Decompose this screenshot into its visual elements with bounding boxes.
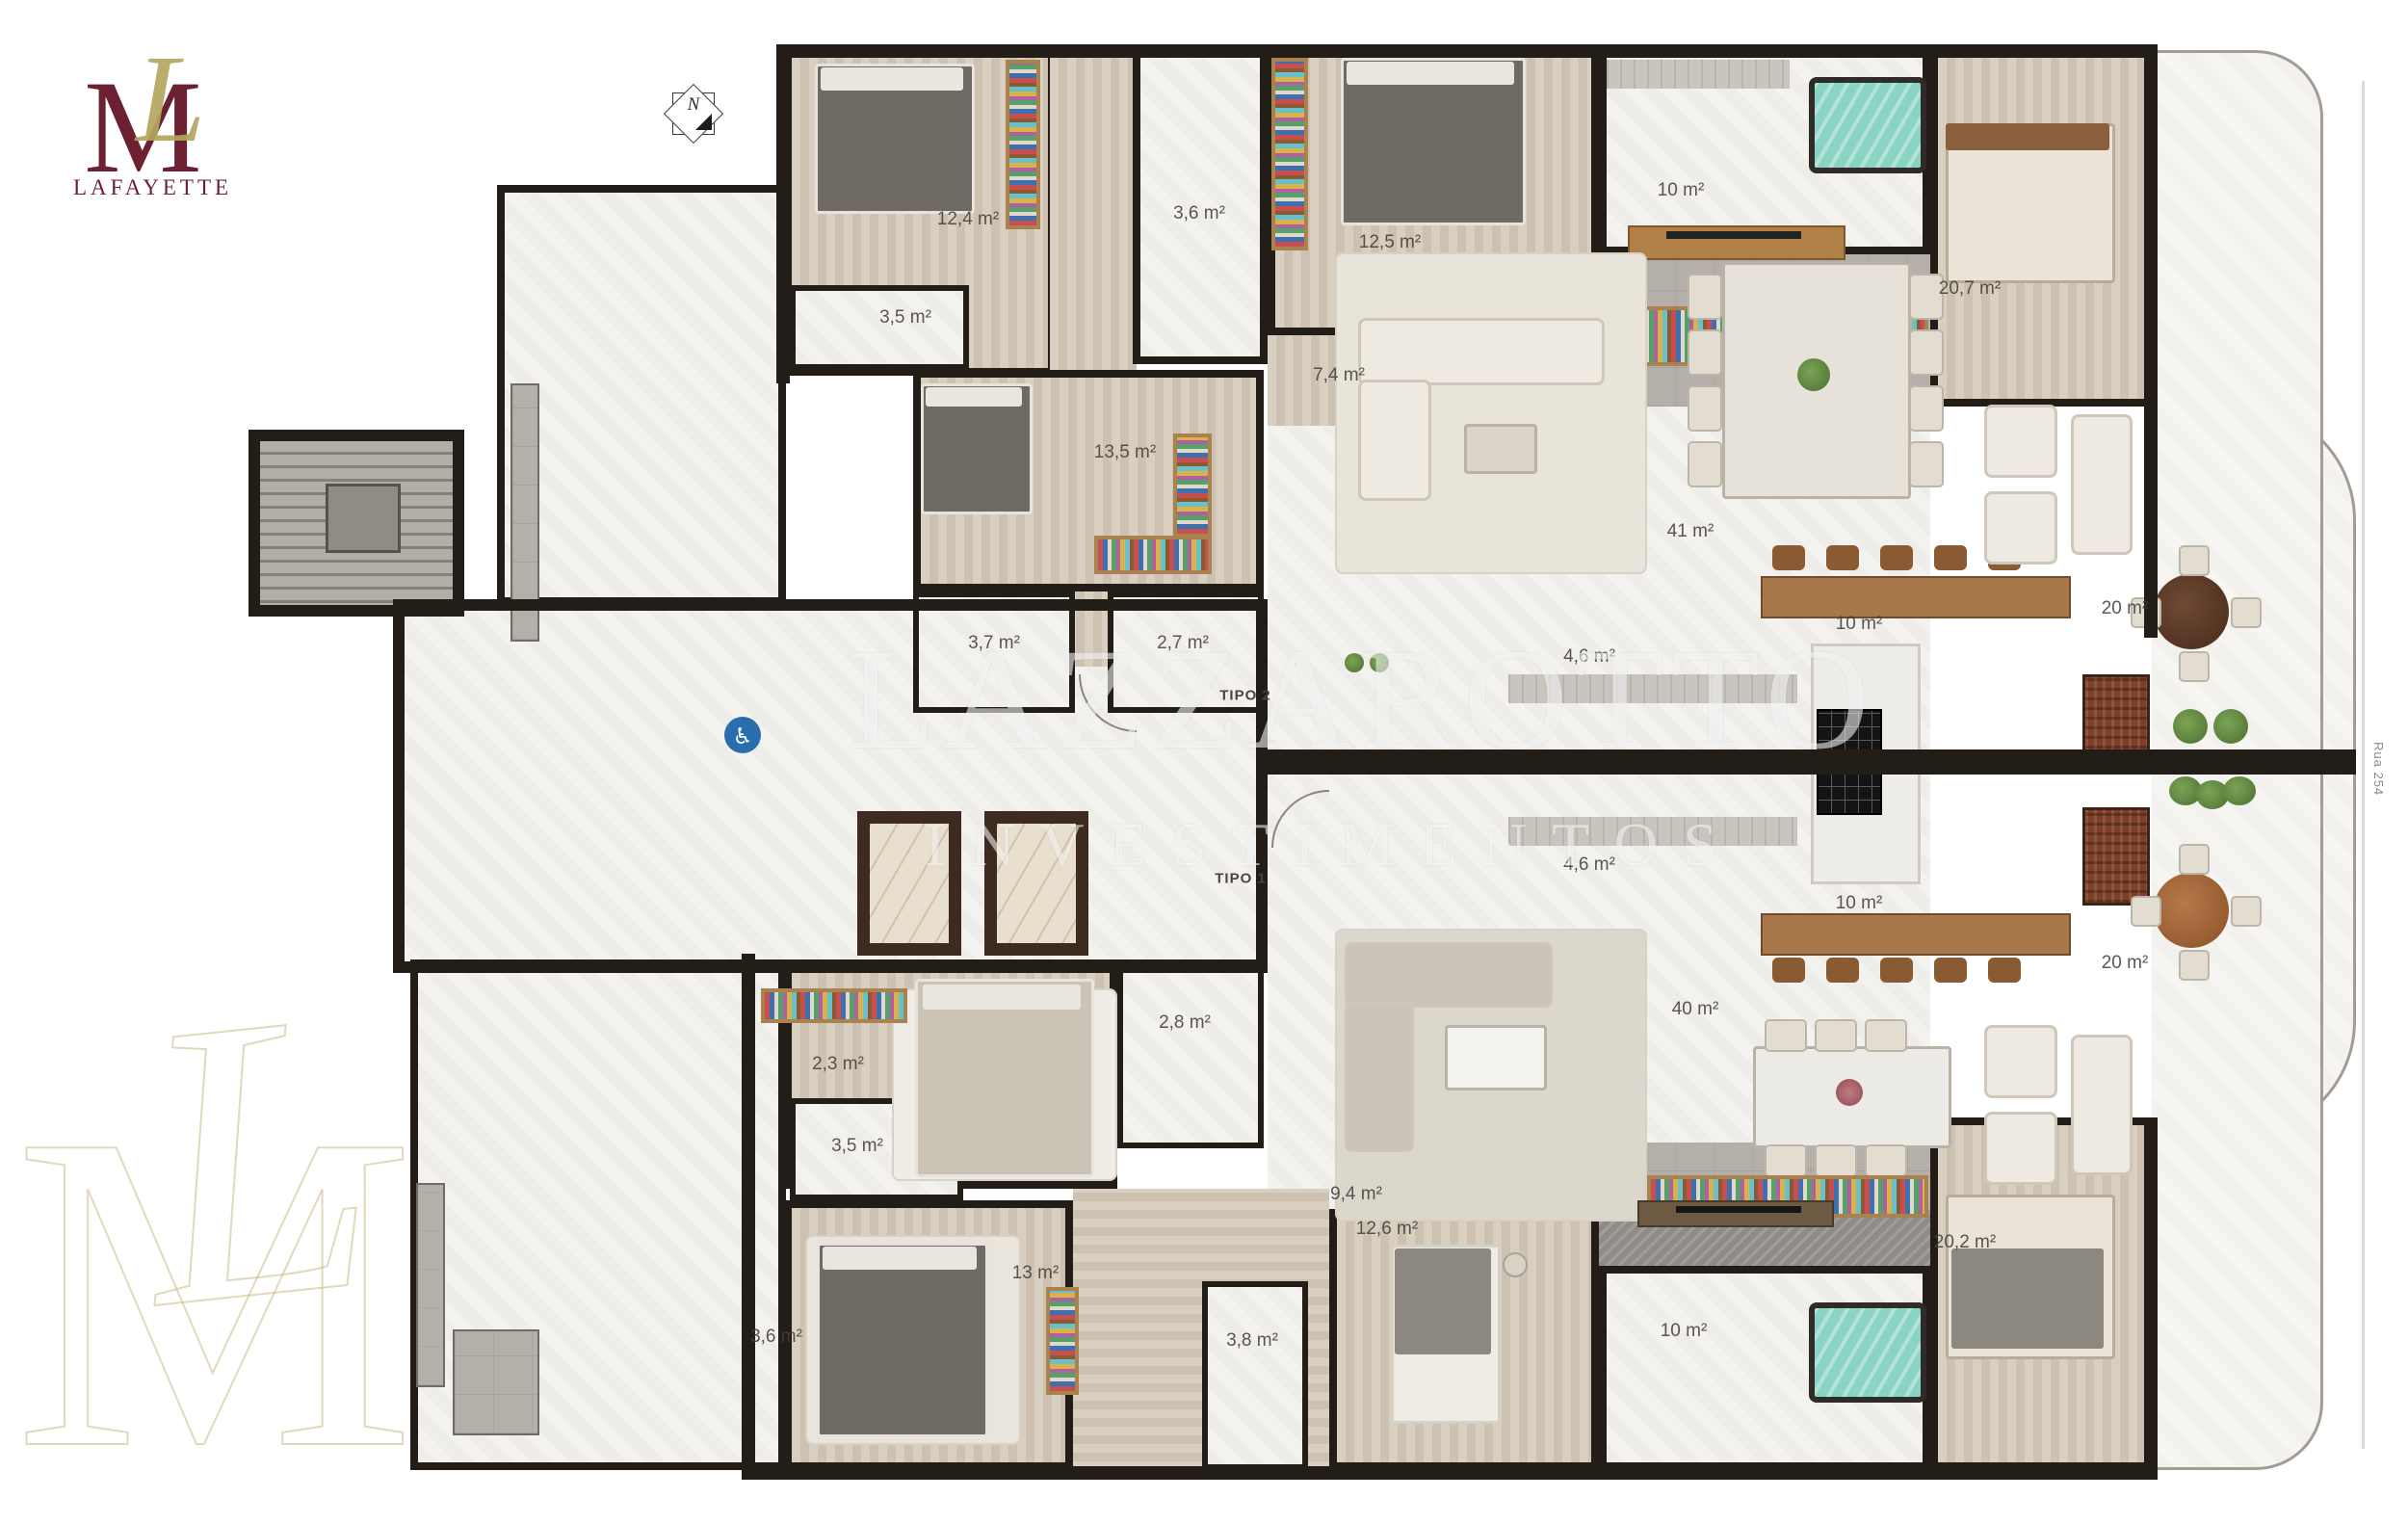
wardrobe-t2-suite3-v: [1173, 434, 1212, 538]
area-label: 13 m²: [1012, 1263, 1060, 1284]
area-label: 2,3 m²: [812, 1054, 864, 1075]
area-label: 10 m²: [1836, 614, 1883, 635]
terrace-chair: [2179, 844, 2210, 875]
service-area-top: [497, 185, 786, 605]
terrace-chair: [2231, 597, 2262, 628]
terrace-chair: [2179, 545, 2210, 576]
kitchen-counter-t2: [1508, 674, 1797, 703]
loveseat-t1: [2071, 1035, 2133, 1175]
pillow: [823, 1247, 977, 1270]
flower-centerpiece-t1: [1836, 1079, 1863, 1106]
elevator-1: [857, 811, 961, 956]
terrace-plant: [2213, 709, 2248, 744]
loveseat-t2: [2071, 414, 2133, 555]
wall-left-bottom: [742, 954, 755, 1480]
chaise-t2: [1358, 380, 1431, 501]
pillow: [923, 985, 1081, 1010]
stool: [1988, 958, 2021, 983]
chair: [1865, 1019, 1907, 1052]
elevator-2: [984, 811, 1088, 956]
armchair-t1: [1984, 1112, 2057, 1185]
wall-corridor-left: [393, 599, 405, 973]
wall-corridor-right: [1256, 607, 1268, 973]
area-label: 9,4 m²: [1330, 1184, 1382, 1205]
wall-right-lower: [2144, 1117, 2158, 1476]
wardrobe-t2-suite2: [1271, 58, 1308, 250]
plant-centerpiece-t2: [1797, 358, 1830, 391]
wardrobe-t2-suite3-h: [1094, 536, 1212, 574]
wardrobe-t1-suite13: [1046, 1287, 1079, 1395]
area-label: 3,6 m²: [750, 1327, 802, 1348]
bed-t1-suite13: [817, 1243, 988, 1437]
area-label: 4,6 m²: [1563, 854, 1615, 876]
bbq-grill-t1: [2082, 807, 2150, 906]
area-label: 20 m²: [2102, 953, 2149, 974]
tv-console-t1: [1637, 1200, 1834, 1227]
stool: [1934, 958, 1967, 983]
chair: [1865, 1144, 1907, 1177]
chair: [1909, 385, 1944, 432]
stool: [1934, 545, 1967, 570]
wall-bottom: [742, 1466, 2158, 1480]
area-label: 12,6 m²: [1356, 1219, 1418, 1240]
stool: [1772, 545, 1805, 570]
plant: [1370, 653, 1389, 672]
terrace-chair: [2179, 651, 2210, 682]
sofa-t1-chaise: [1345, 1002, 1414, 1152]
area-label: 20,7 m²: [1939, 278, 2001, 300]
area-label: 3,5 m²: [831, 1136, 883, 1157]
street-label: Rua 254: [2371, 742, 2386, 796]
pillow: [821, 67, 963, 91]
area-label: 7,4 m²: [1313, 365, 1365, 386]
terrace-table-t2: [2154, 574, 2229, 649]
area-label: 4,6 m²: [1563, 646, 1615, 668]
pillow: [1347, 62, 1514, 85]
t1-bath38: [1202, 1281, 1308, 1470]
pillow: [926, 387, 1022, 407]
terrace-bush: [2223, 776, 2256, 805]
wall-corridor-top: [393, 599, 1268, 611]
terrace-chair: [2131, 896, 2161, 927]
floorplan-page: M L LAFAYETTE N Rua 254 TIPO 2 4 suítes.…: [0, 0, 2408, 1524]
chair: [1688, 274, 1722, 320]
cabinet-strip-bottom: [416, 1183, 445, 1387]
area-label: 3,7 m²: [968, 633, 1020, 654]
accessibility-icon: ♿: [724, 717, 761, 753]
area-label: 10 m²: [1658, 180, 1705, 201]
wardrobe-t1-closet23: [761, 988, 907, 1023]
coffee-table-t1: [1445, 1025, 1547, 1090]
terrace-plant: [2173, 709, 2208, 744]
area-label: 12,5 m²: [1359, 232, 1421, 253]
stool: [1772, 958, 1805, 983]
wall-right-upper: [2144, 44, 2158, 638]
right-margin-line: [2362, 81, 2365, 1449]
chair: [1765, 1019, 1807, 1052]
terrace-chair: [2179, 950, 2210, 981]
chair: [1815, 1144, 1857, 1177]
area-label: 2,8 m²: [1159, 1012, 1211, 1034]
sofa-t2: [1358, 318, 1605, 385]
chair: [1765, 1144, 1807, 1177]
stool: [1880, 958, 1913, 983]
bar-counter-t2: [1761, 576, 2071, 618]
chair: [1909, 329, 1944, 376]
logo-l-letter: L: [136, 27, 205, 171]
bbq-grill-t2: [2082, 674, 2150, 761]
stool: [1880, 545, 1913, 570]
kitchen-counter-t1: [1508, 817, 1797, 846]
stair-landing: [326, 484, 401, 553]
stool: [1826, 545, 1859, 570]
blanket-t1-master: [1951, 1248, 2104, 1349]
sofa-t1: [1345, 942, 1553, 1008]
compass-n: N: [663, 94, 724, 116]
chair: [1688, 329, 1722, 376]
chair: [1688, 385, 1722, 432]
compass-needle: [695, 114, 712, 130]
area-label: 20 m²: [2102, 598, 2149, 619]
area-label: 20,2 m²: [1934, 1232, 1996, 1253]
armchair-t1: [1984, 1025, 2057, 1098]
wall-corridor-bottom: [393, 961, 1268, 973]
shower-bottom-left: [453, 1329, 539, 1435]
area-label: 3,6 m²: [1173, 203, 1225, 224]
area-label: 12,4 m²: [937, 209, 999, 230]
area-label: 10 m²: [1836, 893, 1883, 914]
unit-tag-tipo1: TIPO 1: [1215, 871, 1267, 887]
wall-left-top: [776, 44, 790, 383]
lafayette-wordmark: LAFAYETTE: [73, 175, 232, 200]
headboard-t2-master: [1946, 123, 2109, 150]
side-table: [1503, 1252, 1528, 1277]
chair: [1815, 1019, 1857, 1052]
cooktop-t2: [1817, 709, 1882, 755]
area-label: 41 m²: [1667, 521, 1714, 542]
armchair-t2: [1984, 491, 2057, 565]
tub-t1: [1809, 1302, 1926, 1403]
area-label: 3,5 m²: [879, 307, 931, 328]
tv-t1: [1676, 1206, 1801, 1213]
area-label: 13,5 m²: [1094, 442, 1156, 463]
compass-icon: N: [663, 83, 724, 145]
terrace-table-t1: [2154, 873, 2229, 948]
plant: [1345, 653, 1364, 672]
chair: [1909, 441, 1944, 487]
terrace-chair: [2231, 896, 2262, 927]
armchair-t2: [1984, 405, 2057, 478]
t1-bath28: [1117, 959, 1264, 1148]
tv-t2: [1666, 231, 1801, 239]
vanity-t2: [1607, 60, 1790, 89]
wall-unit-divider: [1256, 749, 2356, 775]
coffee-table-t2: [1464, 424, 1537, 474]
area-label: 3,8 m²: [1226, 1330, 1278, 1352]
wall-top: [776, 44, 2158, 58]
unit-tag-tipo2: TIPO 2: [1219, 688, 1271, 704]
bar-counter-t1: [1761, 913, 2071, 956]
area-label: 40 m²: [1672, 999, 1719, 1020]
stool: [1826, 958, 1859, 983]
corner-monogram-l: L: [120, 914, 393, 1401]
blanket-t1-suite126: [1395, 1248, 1491, 1354]
tub-t2: [1809, 77, 1926, 173]
area-label: 2,7 m²: [1157, 633, 1209, 654]
wardrobe-t2-suite1: [1006, 60, 1040, 229]
area-label: 10 m²: [1661, 1321, 1708, 1342]
chair: [1688, 441, 1722, 487]
cooktop-t1: [1817, 769, 1882, 815]
